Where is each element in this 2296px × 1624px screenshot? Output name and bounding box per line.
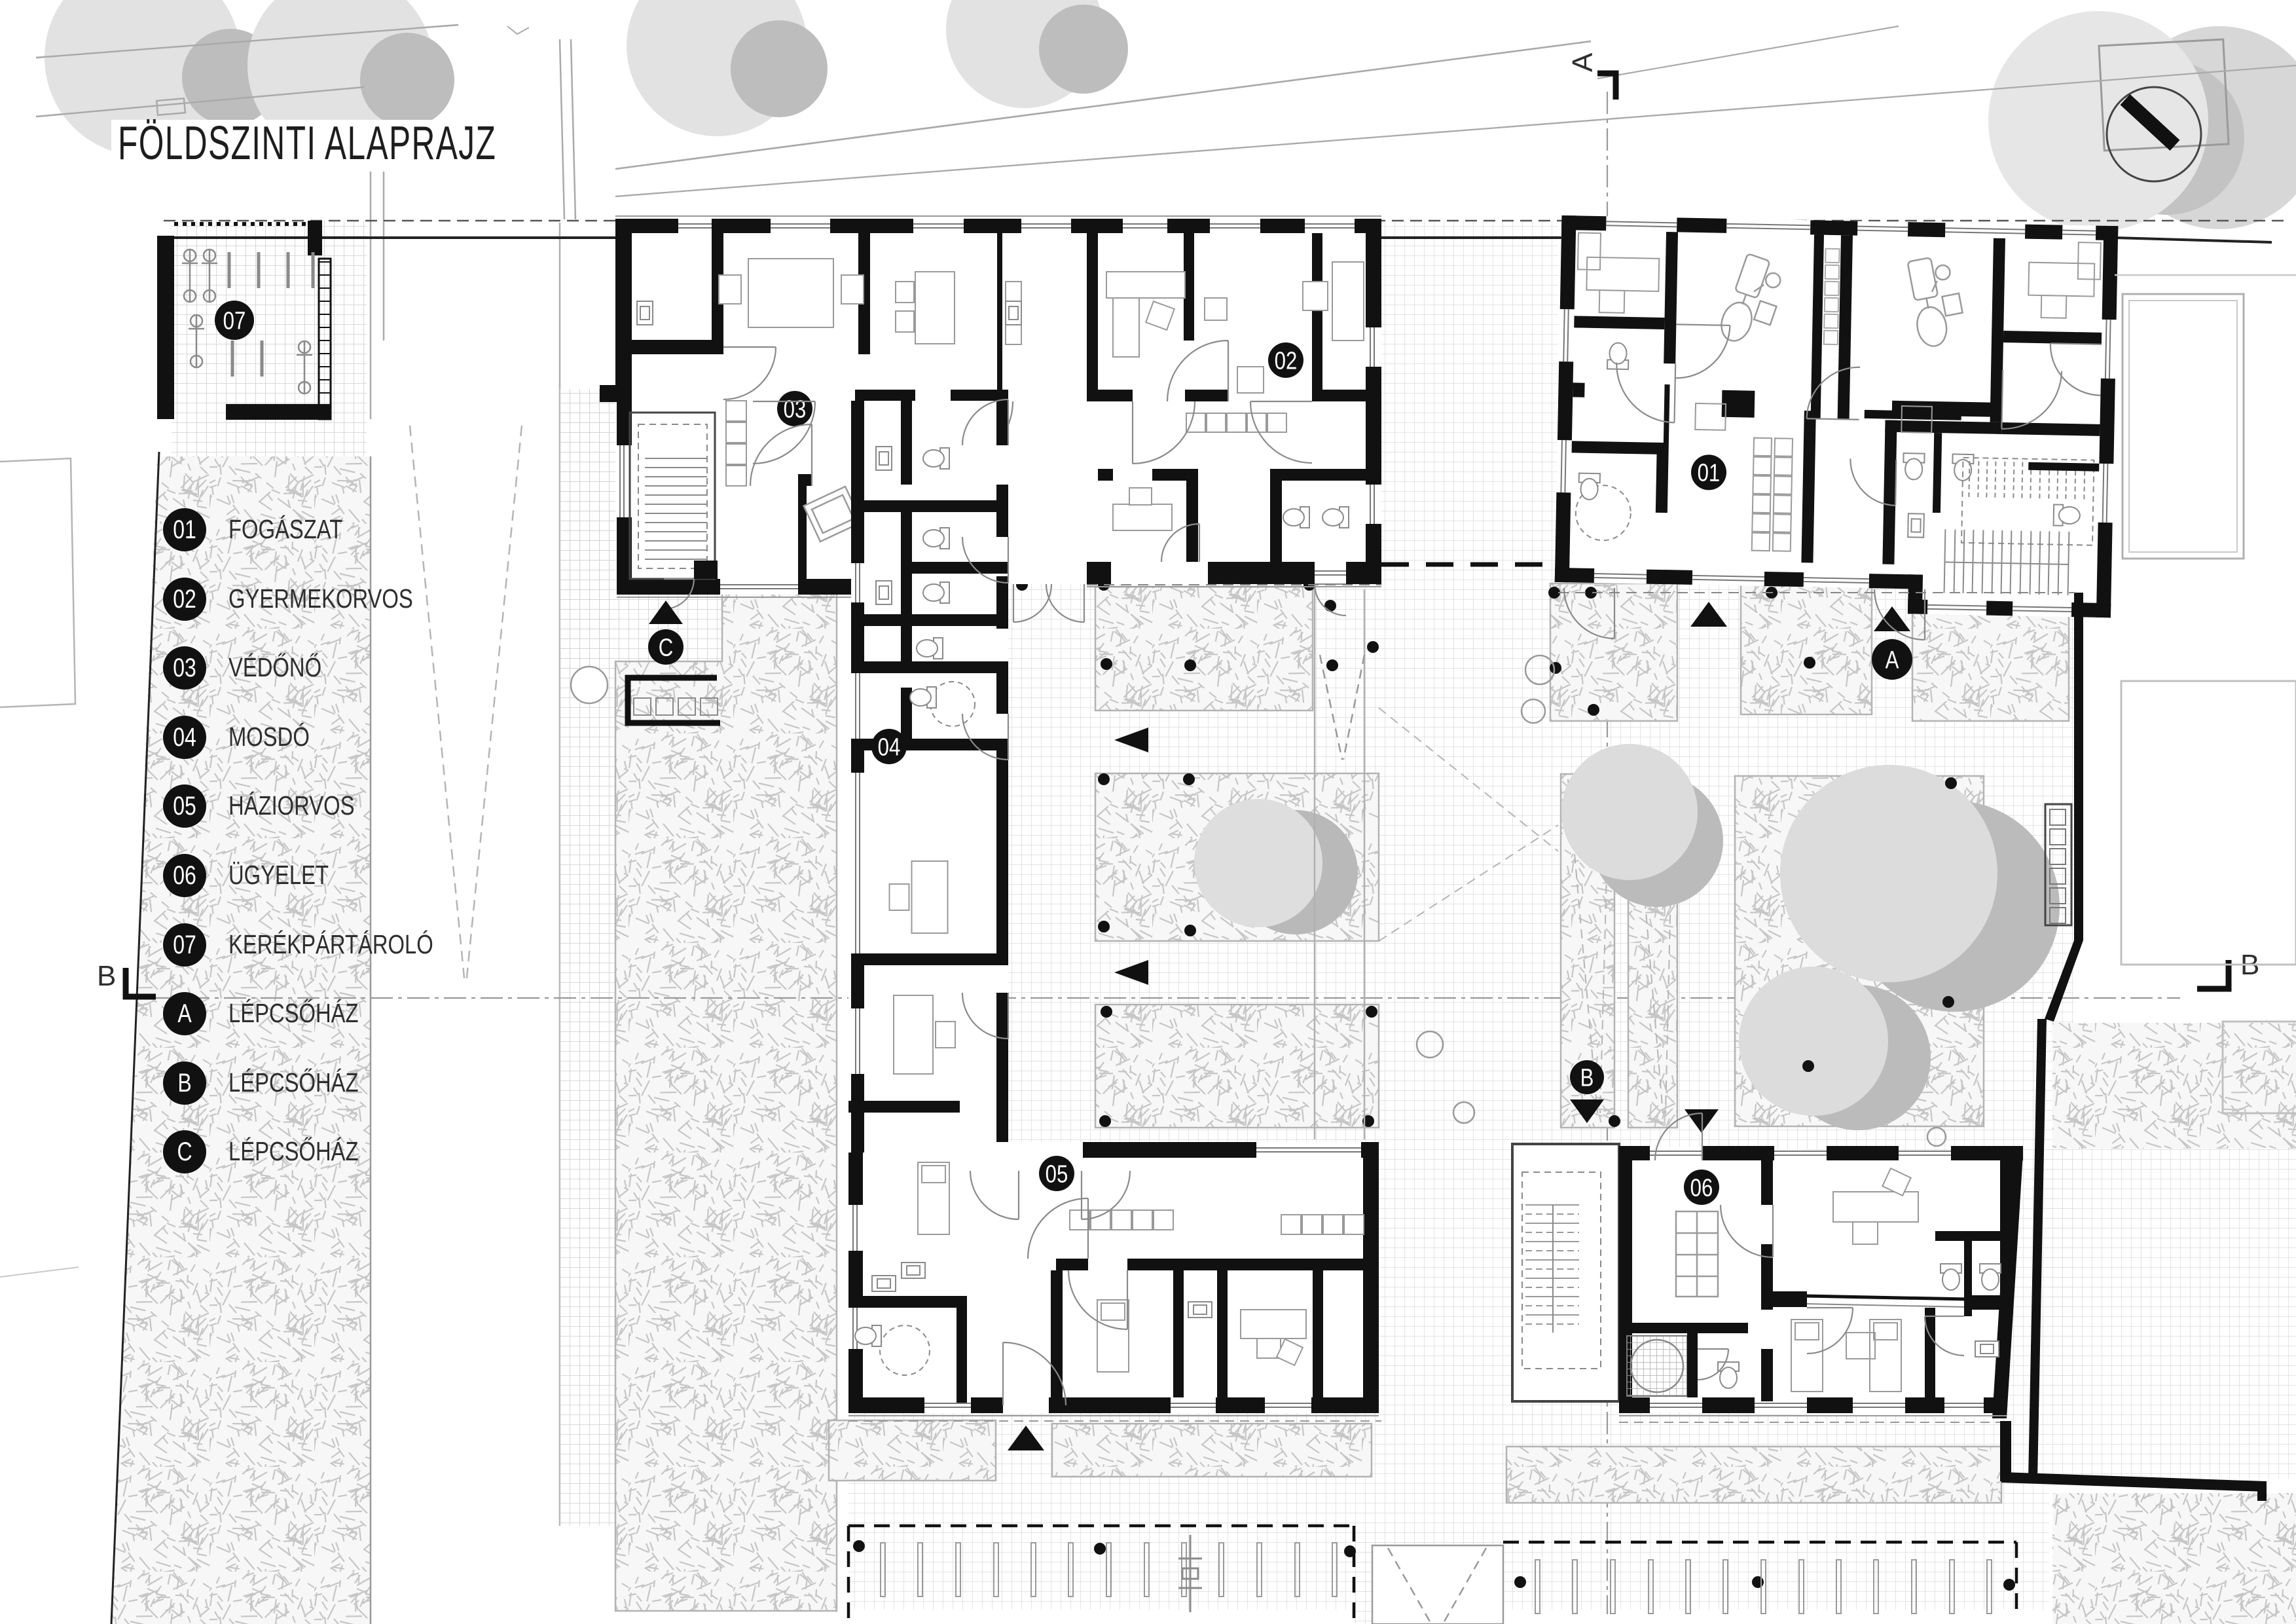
svg-text:B: B xyxy=(177,1068,191,1098)
svg-text:B: B xyxy=(1580,1064,1594,1092)
svg-text:05: 05 xyxy=(173,791,196,821)
svg-text:C: C xyxy=(659,634,674,661)
svg-text:07: 07 xyxy=(173,930,196,959)
svg-text:GYERMEKORVOS: GYERMEKORVOS xyxy=(228,583,413,613)
svg-text:KERÉKPÁRTÁROLÓ: KERÉKPÁRTÁROLÓ xyxy=(228,929,433,959)
svg-text:02: 02 xyxy=(1275,347,1298,375)
svg-text:A: A xyxy=(177,999,192,1028)
svg-text:LÉPCSŐHÁZ: LÉPCSŐHÁZ xyxy=(228,1135,359,1166)
svg-text:06: 06 xyxy=(173,860,196,890)
svg-text:03: 03 xyxy=(784,396,807,423)
svg-text:VÉDŐNŐ: VÉDŐNŐ xyxy=(228,652,321,682)
svg-text:ÜGYELET: ÜGYELET xyxy=(228,859,329,889)
svg-text:04: 04 xyxy=(173,722,196,752)
svg-text:HÁZIORVOS: HÁZIORVOS xyxy=(228,790,354,820)
svg-text:MOSDÓ: MOSDÓ xyxy=(228,721,310,751)
svg-text:FÖLDSZINTI ALAPRAJZ: FÖLDSZINTI ALAPRAJZ xyxy=(118,117,496,170)
svg-text:02: 02 xyxy=(173,584,196,614)
svg-text:B: B xyxy=(97,960,116,992)
svg-text:07: 07 xyxy=(223,307,246,335)
svg-text:03: 03 xyxy=(173,653,196,682)
svg-text:01: 01 xyxy=(173,515,196,544)
svg-text:06: 06 xyxy=(1690,1174,1713,1202)
svg-text:05: 05 xyxy=(1046,1160,1068,1188)
svg-text:C: C xyxy=(177,1137,192,1166)
svg-text:FOGÁSZAT: FOGÁSZAT xyxy=(228,513,342,544)
svg-text:04: 04 xyxy=(878,733,901,761)
svg-text:LÉPCSŐHÁZ: LÉPCSŐHÁZ xyxy=(228,997,359,1027)
svg-text:01: 01 xyxy=(1697,460,1720,487)
svg-text:LÉPCSŐHÁZ: LÉPCSŐHÁZ xyxy=(228,1067,359,1097)
svg-text:A: A xyxy=(1567,52,1599,72)
svg-text:A: A xyxy=(1886,646,1900,674)
